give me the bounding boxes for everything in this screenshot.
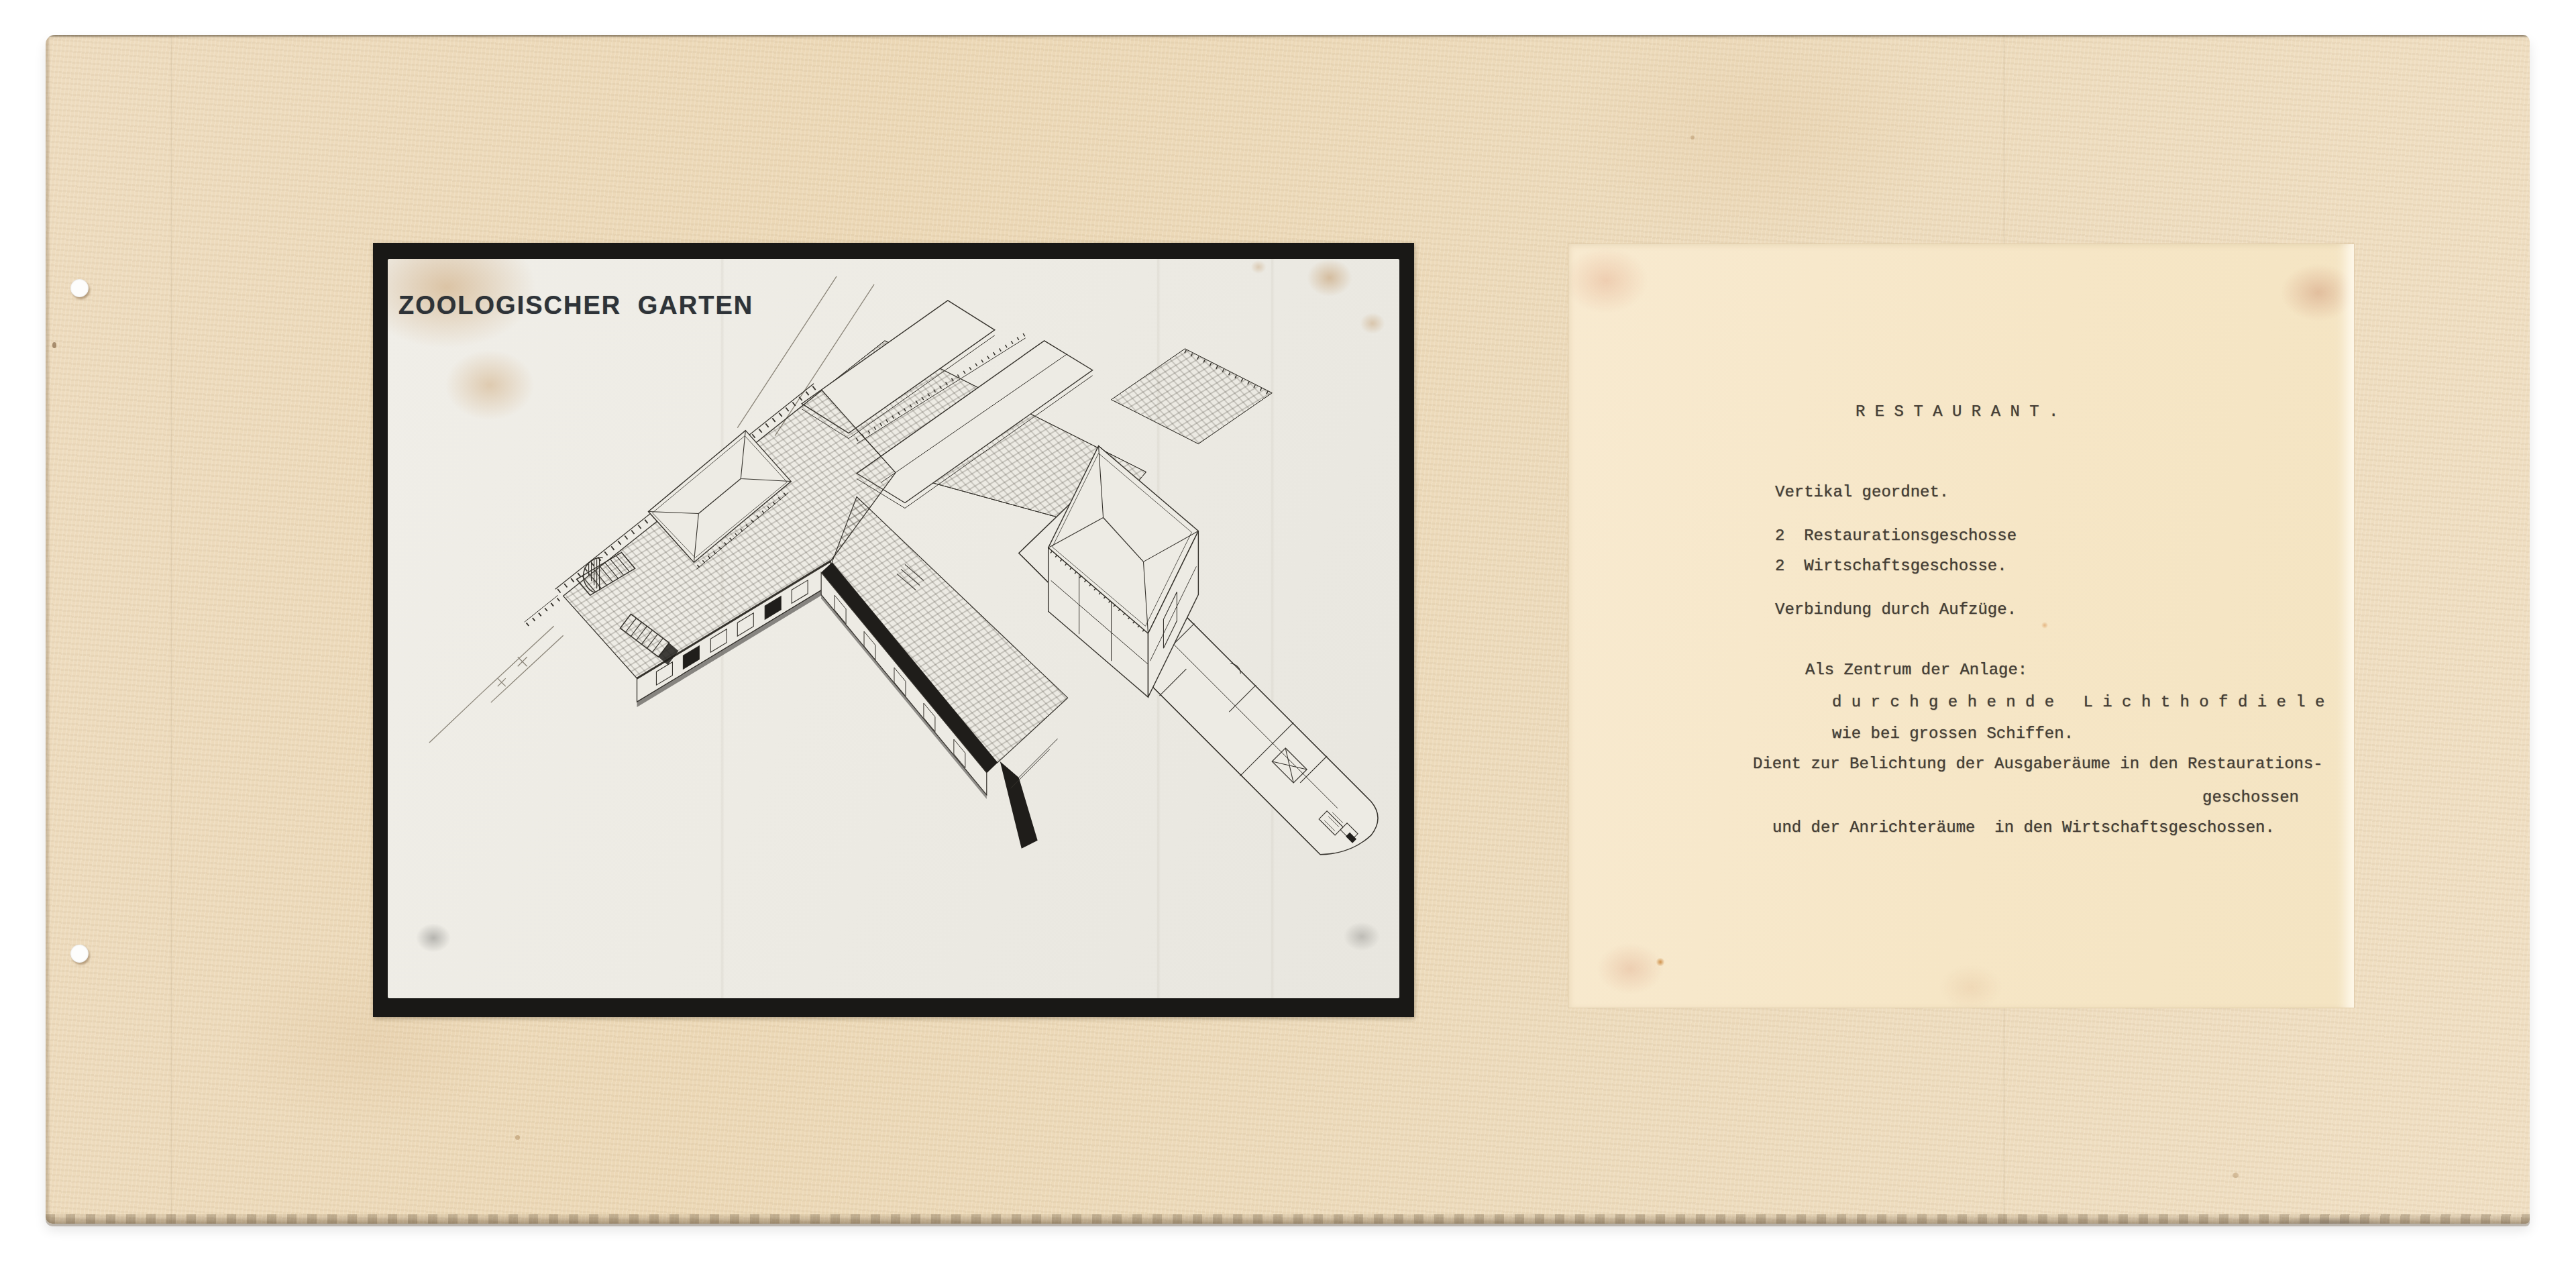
typed-sheet: R E S T A U R A N T . Vertikal geordnet.… <box>1568 244 2355 1008</box>
photo-frame: ZOOLOGISCHER GARTEN <box>373 243 1414 1017</box>
typed-line: Verbindung durch Aufzüge. <box>1775 600 2017 620</box>
foxing-spot <box>52 342 56 348</box>
board-crease <box>170 35 172 1224</box>
typed-line: Als Zentrum der Anlage: <box>1805 660 2027 680</box>
punch-hole-top <box>70 279 89 297</box>
typed-line: wie bei grossen Schiffen. <box>1832 724 2074 744</box>
foxing-spot <box>1690 136 1695 140</box>
photo-caption-title: ZOOLOGISCHER GARTEN <box>398 293 753 318</box>
typed-line: und der Anrichteräume in den Wirtschafts… <box>1772 818 2275 838</box>
mounting-board: ZOOLOGISCHER GARTEN R E S T A U R A N T … <box>46 35 2530 1224</box>
typed-line: Vertikal geordnet. <box>1775 482 1949 502</box>
sheet-heading: R E S T A U R A N T . <box>1856 402 2058 422</box>
typed-line: 2 Wirtschaftsgeschosse. <box>1775 556 2007 576</box>
typed-line: geschossen <box>2202 788 2299 808</box>
photo-paper: ZOOLOGISCHER GARTEN <box>388 259 1399 998</box>
punch-hole-bottom <box>70 945 89 963</box>
axonometric-drawing <box>388 259 1399 998</box>
foxing-spot <box>2233 1173 2239 1178</box>
typed-line: d u r c h g e h e n d e L i c h t h o f … <box>1832 692 2325 712</box>
scan-canvas: ZOOLOGISCHER GARTEN R E S T A U R A N T … <box>0 0 2576 1276</box>
typed-line: 2 Restaurationsgeschosse <box>1775 526 2017 546</box>
typed-line: Dient zur Belichtung der Ausgaberäume in… <box>1753 754 2323 774</box>
foxing-spot <box>515 1135 520 1140</box>
